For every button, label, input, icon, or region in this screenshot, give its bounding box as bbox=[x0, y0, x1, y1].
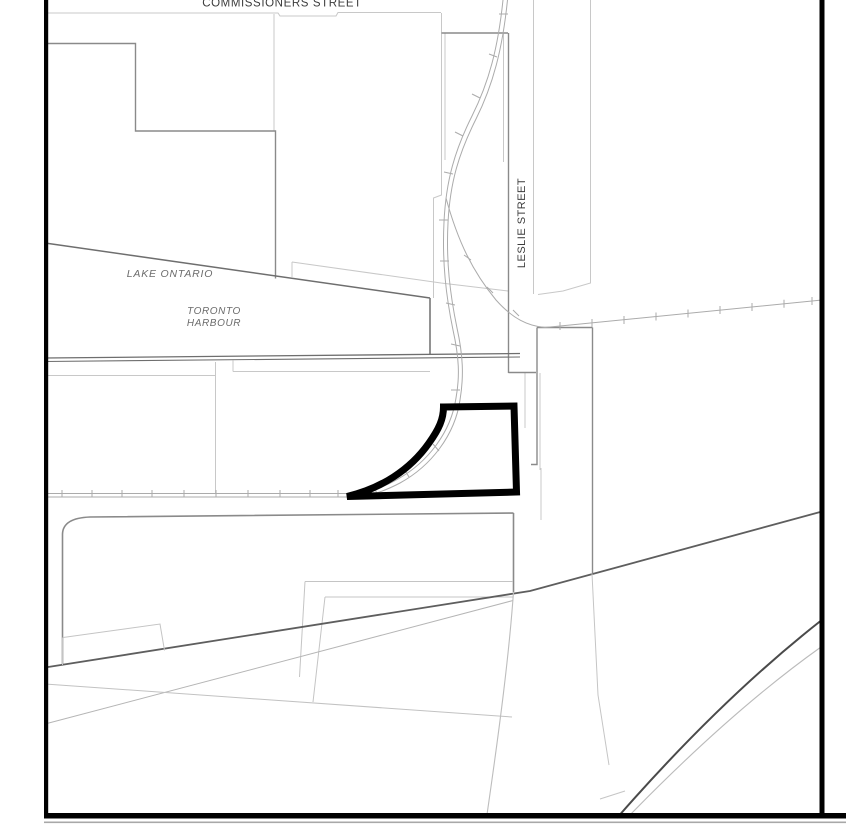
map-background bbox=[0, 0, 846, 824]
map-frame-bottom bbox=[44, 813, 846, 819]
map-frame-right bbox=[820, 0, 825, 816]
toronto-harbour-label-line2: HARBOUR bbox=[187, 318, 241, 329]
toronto-harbour-label-line1: TORONTO bbox=[187, 306, 241, 317]
lake-ontario-label: LAKE ONTARIO bbox=[127, 268, 213, 280]
leslie-street-label: LESLIE STREET bbox=[516, 178, 528, 268]
site-location-map: COMMISSIONERS STREET LAKE ONTARIO TORONT… bbox=[0, 0, 846, 824]
map-frame-left bbox=[44, 0, 48, 818]
survey-map-page: COMMISSIONERS STREET LAKE ONTARIO TORONT… bbox=[0, 0, 846, 824]
map-frame-bottom-shadow bbox=[44, 822, 846, 824]
commissioners-street-label: COMMISSIONERS STREET bbox=[202, 0, 362, 10]
